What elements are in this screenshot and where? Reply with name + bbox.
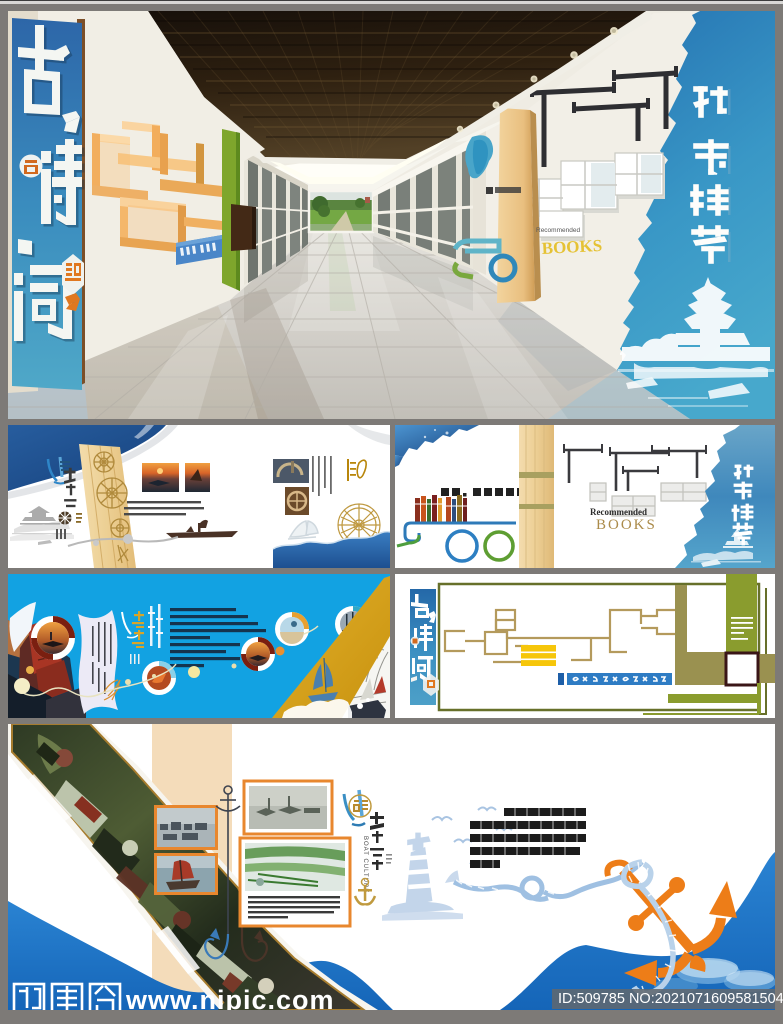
svg-text:Recommended: Recommended <box>590 507 647 517</box>
svg-text:BOOKS: BOOKS <box>541 236 602 258</box>
svg-text:Recommended: Recommended <box>536 227 580 234</box>
svg-text:BOOKS: BOOKS <box>596 517 657 533</box>
